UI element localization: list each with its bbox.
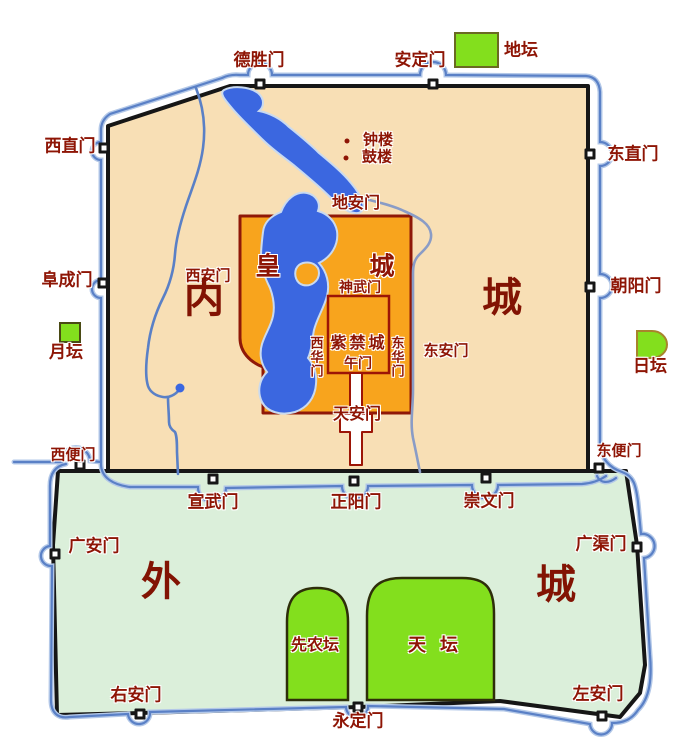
label-deshengmen: 德胜门 xyxy=(234,53,285,70)
altar-ditan-shape xyxy=(455,33,498,67)
label-forbidden-city: 紫禁城 xyxy=(330,335,387,351)
gate-deshengmen-marker xyxy=(255,79,266,90)
gate-chaoyangmen-marker xyxy=(585,282,596,293)
label-xiannongtan: 先农坛 xyxy=(291,637,339,653)
label-yuetan: 月坛 xyxy=(49,345,83,362)
gate-zhengyangmen-marker xyxy=(349,476,360,487)
label-tiananmen: 天安门 xyxy=(333,406,381,422)
label-imperial-city-char1: 皇 xyxy=(255,254,280,279)
gate-andingmen-marker xyxy=(428,79,439,90)
label-drum-tower: 鼓楼 xyxy=(362,150,392,165)
gate-dongbianmen-marker xyxy=(594,463,605,474)
label-xihuamen: 西华门 xyxy=(309,336,322,378)
old-beijing-city-map: 德胜门 安定门 西直门 东直门 阜成门 朝阳门 宣武门 正阳门 崇文门 西便门 … xyxy=(0,0,700,737)
label-imperial-city-char2: 城 xyxy=(369,254,394,279)
gate-youanmen-marker xyxy=(135,709,146,720)
bell-tower-dot xyxy=(345,139,350,144)
label-zhengyangmen: 正阳门 xyxy=(331,495,382,512)
label-dongbianmen: 东便门 xyxy=(596,444,641,459)
label-youanmen: 右安门 xyxy=(111,688,162,705)
altar-ritan-shape xyxy=(637,331,667,358)
label-guangqumen: 广渠门 xyxy=(576,537,627,554)
label-dianmen: 地安门 xyxy=(332,195,380,211)
label-xibianmen: 西便门 xyxy=(50,448,95,463)
label-xuanwumen: 宣武门 xyxy=(188,495,239,512)
label-ritan: 日坛 xyxy=(633,359,667,376)
gate-xuanwumen-marker xyxy=(208,474,219,485)
label-wumen: 午门 xyxy=(344,357,372,371)
label-xizhimen: 西直门 xyxy=(45,139,96,156)
altar-yuetan-shape xyxy=(60,323,80,342)
label-yongdingmen: 永定门 xyxy=(333,714,384,731)
west-river-pond xyxy=(176,384,185,393)
label-tiantan: 天坛 xyxy=(408,637,472,655)
label-fuchengmen: 阜成门 xyxy=(42,273,93,290)
gate-dongzhimen-marker xyxy=(585,149,596,160)
label-zuoanmen: 左安门 xyxy=(573,687,624,704)
label-dongzhimen: 东直门 xyxy=(608,147,659,164)
label-donghuamen: 东华门 xyxy=(390,336,403,378)
label-andingmen: 安定门 xyxy=(395,53,446,70)
gate-fuchengmen-marker xyxy=(98,278,109,289)
label-chaoyangmen: 朝阳门 xyxy=(611,279,662,296)
gate-guangqumen-marker xyxy=(632,542,643,553)
label-ditan: 地坛 xyxy=(504,43,538,60)
label-inner-city-char1: 内 xyxy=(184,279,224,319)
label-inner-city-char2: 城 xyxy=(482,278,522,318)
gate-xizhimen-marker xyxy=(99,143,110,154)
drum-tower-dot xyxy=(344,156,349,161)
label-bell-tower: 钟楼 xyxy=(363,133,393,148)
label-donganmen: 东安门 xyxy=(423,344,468,359)
label-outer-city-char1: 外 xyxy=(141,562,181,602)
label-guanganmen: 广安门 xyxy=(69,539,120,556)
label-outer-city-char2: 城 xyxy=(536,565,576,605)
label-shenwumen: 神武门 xyxy=(339,281,381,295)
gate-zuoanmen-marker xyxy=(597,711,608,722)
gate-chongwenmen-marker xyxy=(481,473,492,484)
label-chongwenmen: 崇文门 xyxy=(464,494,515,511)
gate-guanganmen-marker xyxy=(50,549,61,560)
